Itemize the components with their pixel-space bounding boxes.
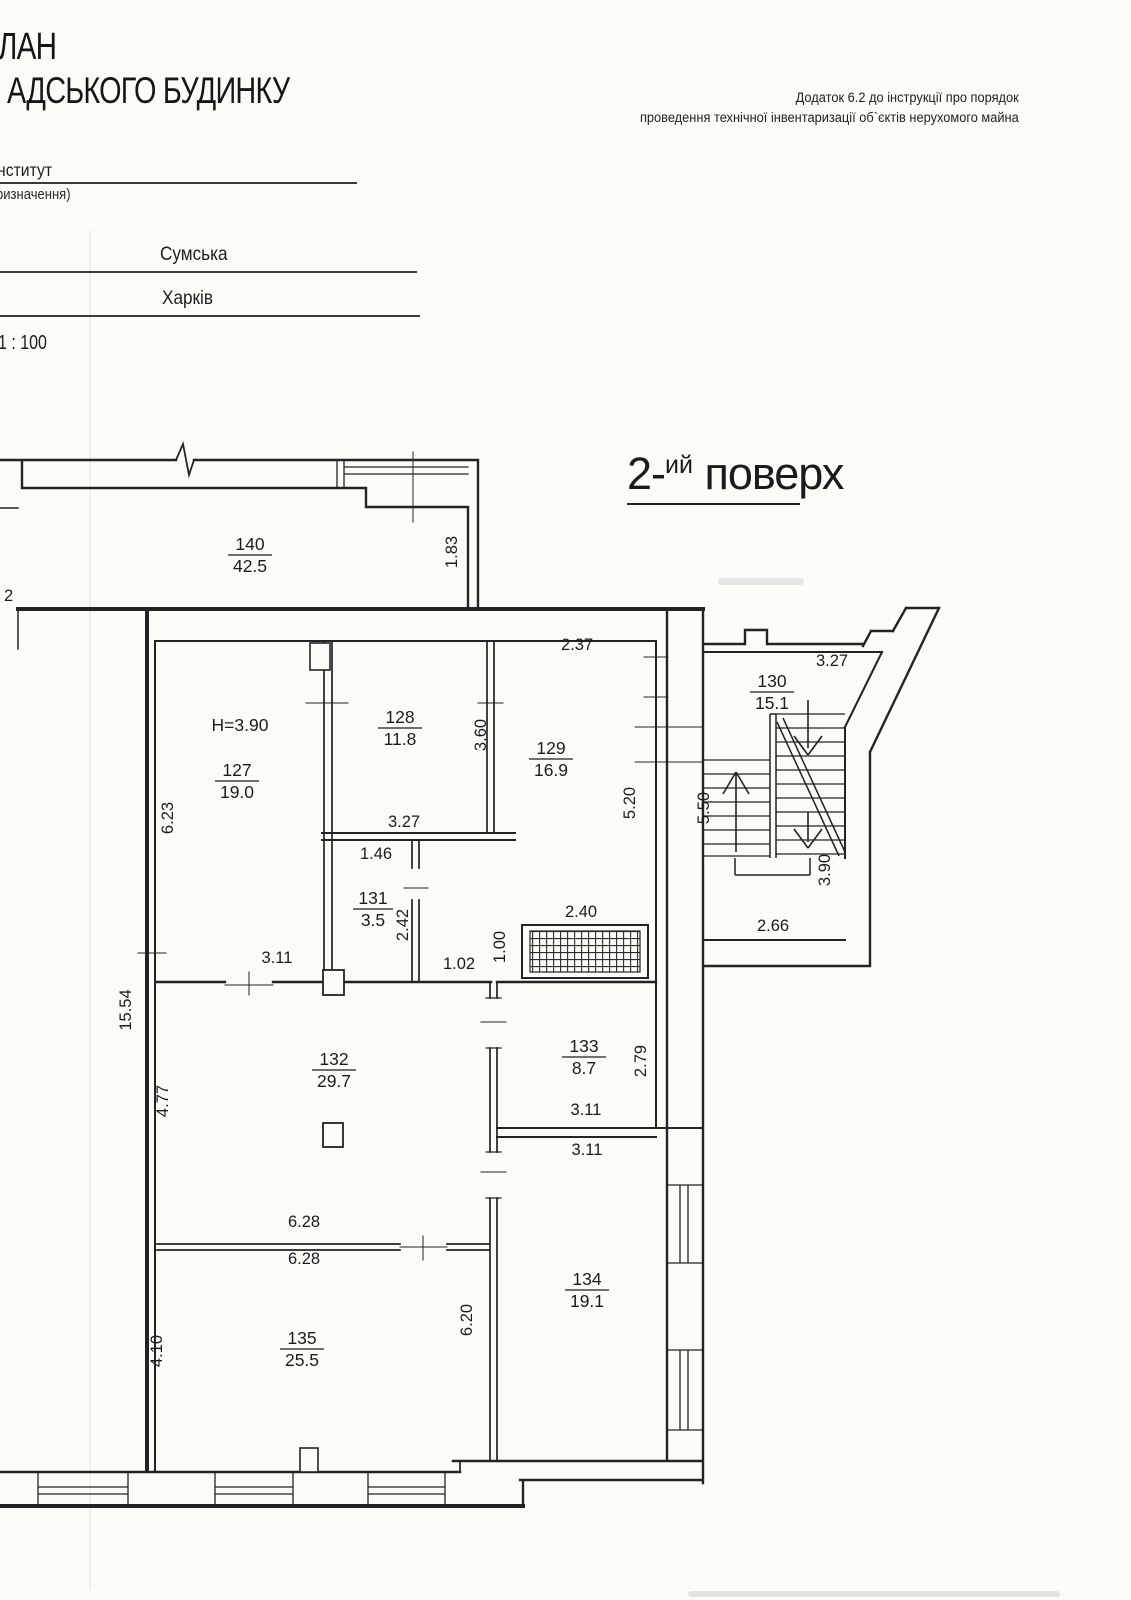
- stair-up-arrow: [723, 772, 749, 852]
- room-number: 131: [358, 888, 387, 908]
- stair-steps-right-flight: [776, 714, 845, 854]
- stair-down-arrow-lower: [794, 812, 822, 848]
- column: [323, 1123, 343, 1147]
- stair-rail-diagonal: [777, 718, 845, 856]
- scanned-floor-plan-sheet: Додаток 6.2 до інструкції про порядок пр…: [0, 0, 1131, 1600]
- room-label-140: 140 42.5: [228, 534, 272, 576]
- dim-5-20: 5.20: [621, 787, 639, 819]
- room-area: 19.0: [220, 782, 254, 802]
- door-threshold: [225, 985, 447, 1247]
- room-label-130: 130 15.1: [750, 671, 794, 713]
- floor-plan-drawing: 140 42.5 127 19.0 128 11.8 129 16.9 130: [0, 0, 1131, 1600]
- dim-edge-fragment: 2: [4, 587, 13, 605]
- dim-2-79: 2.79: [632, 1045, 650, 1077]
- dim-2-66: 2.66: [757, 917, 789, 935]
- dimension-ticks: [138, 452, 668, 1260]
- room-area: 29.7: [317, 1071, 351, 1091]
- dim-3-27-room128: 3.27: [388, 813, 420, 831]
- room-number: 140: [235, 534, 264, 554]
- room-area: 11.8: [384, 729, 417, 749]
- stair-landing: [735, 858, 810, 875]
- dim-2-42: 2.42: [394, 909, 412, 941]
- exterior-wall: [0, 460, 939, 1506]
- ceiling-height-note: H=3.90: [212, 715, 269, 735]
- door-jamb-caps: [486, 998, 501, 1198]
- room-label-132: 132 29.7: [312, 1049, 356, 1091]
- room-number: 127: [222, 760, 251, 780]
- dim-3-90: 3.90: [816, 854, 834, 886]
- dim-1-02: 1.02: [443, 955, 475, 973]
- room-number: 130: [757, 671, 786, 691]
- dim-2-40: 2.40: [565, 903, 597, 921]
- dim-3-60: 3.60: [472, 719, 490, 751]
- room-label-135: 135 25.5: [280, 1328, 324, 1370]
- dim-4-77: 4.77: [154, 1085, 172, 1117]
- dim-1-83: 1.83: [443, 536, 461, 568]
- room-label-131: 131 3.5: [353, 888, 393, 930]
- room-number: 132: [319, 1049, 348, 1069]
- room-label-133: 133 8.7: [562, 1036, 606, 1078]
- wall-pier: [300, 1448, 318, 1472]
- room-area: 19.1: [570, 1291, 604, 1311]
- room-label-134: 134 19.1: [565, 1269, 609, 1311]
- room-area: 16.9: [534, 760, 568, 780]
- room-number: 134: [572, 1269, 601, 1289]
- dim-6-28-upper: 6.28: [288, 1213, 320, 1231]
- room-number: 129: [536, 738, 565, 758]
- dim-15-54: 15.54: [117, 989, 135, 1030]
- wall-break-symbol: [176, 444, 194, 475]
- extension-lines: [635, 727, 703, 762]
- column: [323, 970, 344, 995]
- dim-6-20: 6.20: [458, 1304, 476, 1336]
- room-label-127: 127 19.0: [215, 760, 259, 802]
- inner-wall: [155, 641, 882, 1472]
- dim-2-37: 2.37: [561, 636, 593, 654]
- dim-3-11-room134: 3.11: [572, 1141, 603, 1159]
- dim-6-28-lower: 6.28: [288, 1250, 320, 1268]
- dim-1-00: 1.00: [491, 931, 509, 963]
- edge-wall-stubs: [0, 508, 18, 649]
- room-area: 42.5: [233, 556, 267, 576]
- room-number: 135: [287, 1328, 316, 1348]
- room-number: 128: [385, 707, 414, 727]
- staircase: [703, 700, 845, 875]
- dim-4-10: 4.10: [148, 1335, 166, 1367]
- dim-1-46: 1.46: [360, 845, 392, 863]
- dim-3-27-stair: 3.27: [816, 652, 848, 670]
- room-area: 15.1: [755, 693, 789, 713]
- room-area: 25.5: [285, 1350, 319, 1370]
- dim-3-11-corridor: 3.11: [262, 949, 293, 967]
- stair-stringer: [770, 714, 776, 858]
- wall-pier: [310, 643, 330, 670]
- room-area: 8.7: [572, 1058, 596, 1078]
- dim-5-50: 5.50: [695, 792, 713, 824]
- dim-6-23: 6.23: [159, 802, 177, 834]
- dimension-labels: 1.83 2.37 3.27 3.60 6.23 3.27 5.20 5.50 …: [4, 536, 848, 1367]
- room-label-128: 128 11.8: [378, 707, 422, 749]
- ventilation-shaft: [522, 925, 648, 978]
- room-area: 3.5: [361, 910, 385, 930]
- room-number: 133: [569, 1036, 598, 1056]
- room-label-129: 129 16.9: [529, 738, 573, 780]
- walls: [0, 444, 939, 1506]
- dim-3-11-room133: 3.11: [571, 1101, 602, 1119]
